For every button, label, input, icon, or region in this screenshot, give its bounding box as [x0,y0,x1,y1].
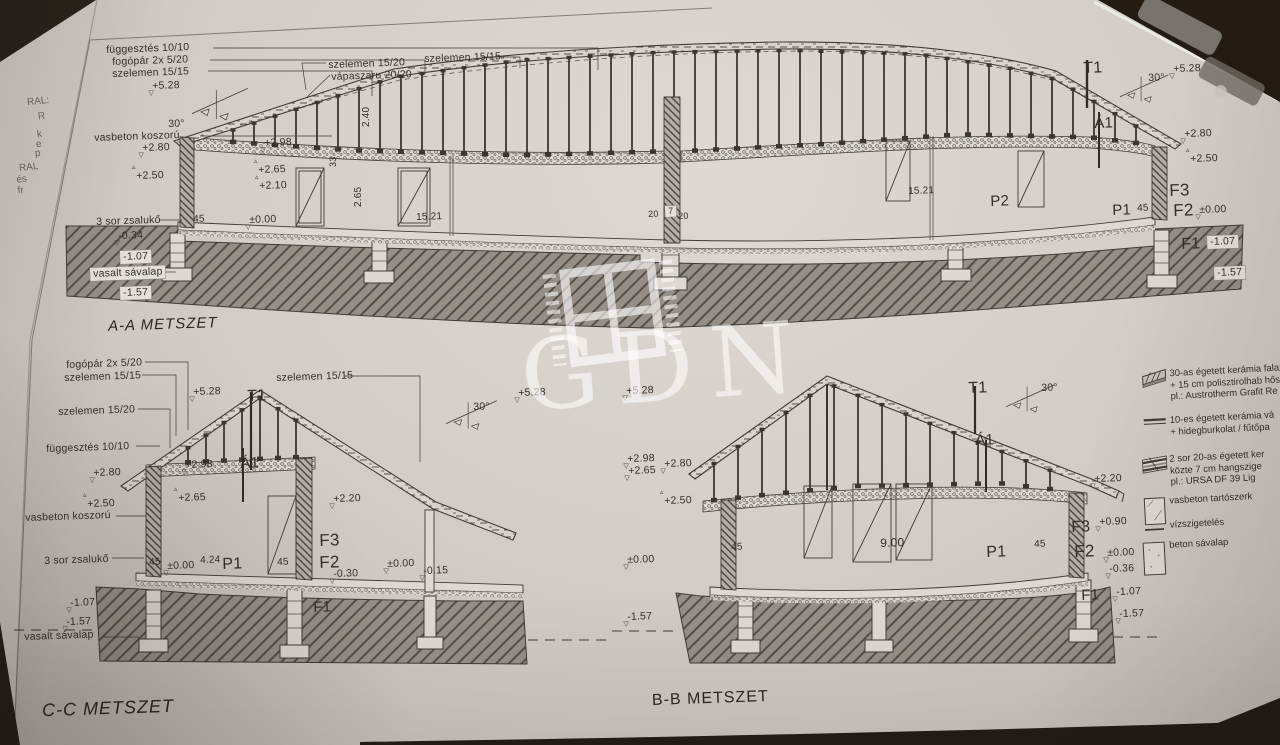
annotation-label: +2.50▵ [87,497,115,510]
annotation-label: 9.00 [880,535,905,550]
legend-item-text: 30-as égetett kerámia falaz+ 15 cm polis… [1169,362,1280,402]
level-mark-icon: ▽ [1112,595,1118,603]
annotation-label: +2.98▽ [185,458,213,471]
level-mark-icon: ▽ [114,239,120,247]
annotation-label: 45 [193,214,205,225]
annotation-label: vápaszaru 20/20 [331,68,412,83]
annotation-label: -1.07▽ [1116,585,1141,598]
annotation-label: -1.57▽ [1119,607,1144,620]
annotation-label: -0.34▽ [118,229,143,242]
waterproofing-icon [1142,520,1171,539]
annotation-label: ±0.00▽ [249,213,277,226]
sheet-fragment-text: R [37,111,45,123]
level-mark-icon: ▽ [1105,572,1111,580]
annotation-label: 45 [149,557,161,568]
legend-item: vízszigetelés [1142,517,1225,539]
annotation-label: T1 [1083,59,1103,78]
annotation-label: vasalt sávalap [24,629,94,643]
annotation-label: +2.80▽ [664,457,692,470]
annotation-label: vasbeton koszorú [25,509,111,524]
annotation-label: 3 sor zsalukő [96,214,161,228]
annotation-label: T1 [968,379,988,398]
annotation-label: +2.98▽ [627,452,655,465]
annotation-layer: függesztés 10/10fogópár 2x 5/20szelemen … [0,0,1280,745]
level-mark-icon: ▽ [419,574,425,582]
annotation-label: függesztés 10/10 [46,440,130,455]
annotation-label: +0.90▽ [1099,515,1127,528]
materials-legend: 30-as égetett kerámia falaz+ 15 cm polis… [1142,0,1280,745]
annotation-label: szelemen 15/15 [64,369,141,384]
annotation-label: szelemen 15/15 [424,50,501,65]
level-mark-icon: ▵ [174,485,178,493]
annotation-label: F3 [1071,518,1091,537]
annotation-label: 45 [277,557,289,568]
level-mark-icon: ▽ [624,474,630,482]
legend-item: 2 sor 20-as égetett kerközte 7 cm hangsz… [1141,449,1266,490]
annotation-label: 30° [473,400,490,413]
annotation-label: +2.65▽ [628,464,656,477]
level-mark-icon: ▽ [1095,525,1101,533]
concrete-strip-icon [1141,540,1171,582]
legend-item-text: vízszigetelés [1170,517,1225,531]
annotation-label: -0.36▽ [1109,562,1134,575]
annotation-label: -1.57▽ [66,615,91,628]
level-mark-icon: ▵ [254,157,258,165]
level-mark-icon: ▽ [1115,617,1121,625]
level-mark-icon: ▽ [66,606,72,614]
sheet-fragment-text: p [34,148,41,160]
annotation-label: 4.24 [200,554,221,566]
level-mark-icon: ▽ [245,223,251,231]
level-mark-icon: ▽ [260,146,266,154]
partition-10-icon [1141,415,1170,435]
annotation-label: 33 [328,157,338,167]
annotation-label: +2.50▵ [136,169,164,182]
wall-20x2-icon [1141,454,1170,480]
annotation-label: F2 [1074,541,1095,562]
level-mark-icon: ▽ [163,569,169,577]
level-mark-icon: ▽ [1090,482,1096,490]
annotation-label: F3 [319,530,340,551]
annotation-label: -1.07▽ [70,596,95,609]
annotation-label: F1 [313,598,331,616]
level-mark-icon: ▽ [189,395,195,403]
annotation-label: 30° [1041,381,1058,394]
annotation-label: +5.28▽ [626,384,654,397]
legend-item: beton sávalap [1141,537,1230,583]
level-mark-icon: ▵ [83,491,87,499]
legend-item: 10-es égetett kerámia vá+ hidegburkolat … [1141,410,1275,440]
annotation-label: +5.28▽ [193,385,221,398]
level-mark-icon: ▽ [89,476,95,484]
annotation-label: P2 [990,192,1009,210]
level-mark-icon: ▽ [383,567,389,575]
level-mark-icon: ▽ [181,468,187,476]
wall-30-icon [1141,368,1170,396]
legend-item: 30-as égetett kerámia falaz+ 15 cm polis… [1141,362,1280,404]
annotation-label: T1 [247,387,267,406]
level-mark-icon: ▽ [623,620,629,628]
annotation-label: Á1 [1094,114,1113,132]
annotation-label: +2.98▽ [264,136,292,149]
level-mark-icon: ▵ [132,163,136,171]
level-mark-icon: ▵ [660,488,664,496]
annotation-label: 15.21 [908,185,934,197]
annotation-label: -1.57▽ [627,610,652,623]
annotation-label: +2.50▵ [664,494,692,507]
legend-item-text: beton sávalap [1169,537,1229,552]
annotation-label: vasalt sávalap [90,265,166,280]
annotation-label: +2.65▵ [258,163,286,176]
annotation-label: -1.07 [120,250,151,263]
legend-item-text: vasbeton tartószerk [1169,491,1252,507]
legend-item-text: 10-es égetett kerámia vá+ hidegburkolat … [1169,410,1275,438]
level-mark-icon: ▵ [255,173,259,181]
annotation-label: +2.10▵ [259,179,287,192]
annotation-label: +2.65▵ [178,491,206,504]
annotation-label: 15.21 [416,211,442,223]
level-mark-icon: ▽ [660,467,666,475]
annotation-label: P1 [1112,201,1131,219]
sheet-fragment-text: RAL: [26,95,49,108]
annotation-label: ±0.00▽ [1107,546,1135,559]
annotation-label: 20 [648,209,659,219]
annotation-label: 20 [678,211,689,221]
level-mark-icon: ▽ [623,563,629,571]
annotation-label: 2.65 [353,187,364,207]
level-mark-icon: ▽ [329,577,335,585]
annotation-label: +2.80▽ [142,141,170,154]
level-mark-icon: ▽ [622,394,628,402]
annotation-label: -1.57 [120,286,151,299]
annotation-label: +5.28▽ [152,79,180,92]
annotation-label: Á1 [975,431,994,449]
level-mark-icon: ▽ [329,502,335,510]
annotation-label: ±0.00▽ [387,557,415,570]
level-mark-icon: ▽ [148,89,154,97]
annotation-label: 7 [665,206,677,216]
annotation-label: 45 [731,542,743,553]
annotation-label: szelemen 15/20 [58,403,135,418]
annotation-label: szelemen 15/15 [112,65,189,80]
annotation-label: Á1 [240,454,259,472]
annotation-label: -0.15▽ [423,564,448,577]
annotation-label: 3 sor zsalukő [44,553,109,567]
legend-item-text: 2 sor 20-as égetett kerközte 7 cm hangsz… [1169,449,1266,488]
annotation-label: szelemen 15/15 [276,369,353,384]
annotation-label: P1 [222,555,243,574]
level-mark-icon: ▽ [138,151,144,159]
annotation-label: P1 [986,543,1007,562]
annotation-label: +2.20▽ [333,492,361,505]
photo-of-architectural-drawing: függesztés 10/10fogópár 2x 5/20szelemen … [0,0,1280,745]
annotation-label: 2.40 [361,107,372,127]
annotation-label: 45 [1034,539,1046,550]
annotation-label: F1 [1081,586,1099,604]
annotation-label: +5.28▽ [518,386,546,399]
annotation-label: +2.80▽ [93,466,121,479]
annotation-label: ±0.00▽ [167,559,195,572]
sheet-fragment-text: RAL [18,161,38,174]
annotation-label: ±0.00▽ [627,553,655,566]
annotation-label: +2.20▽ [1094,472,1122,485]
sheet-fragment-text: és fr [16,174,29,197]
level-mark-icon: ▽ [514,396,520,404]
annotation-label: -0.30▽ [333,567,358,580]
